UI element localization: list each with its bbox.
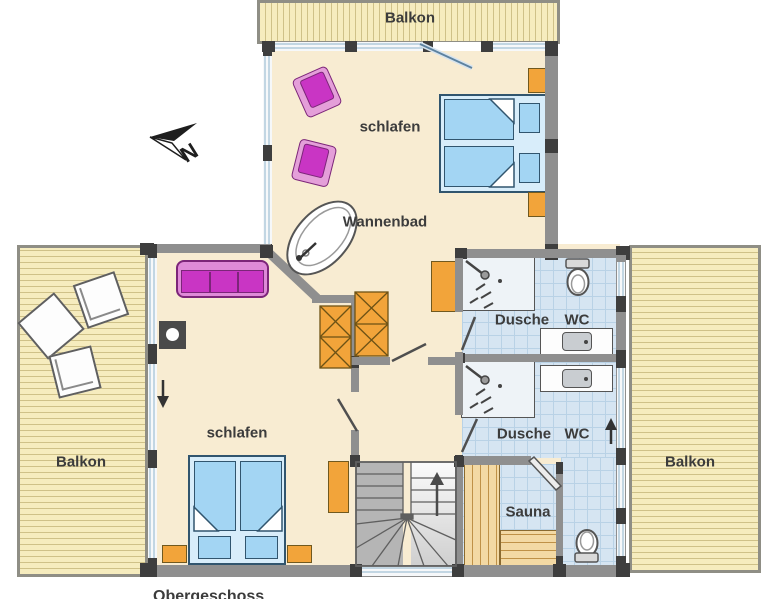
balcony-right-label: Balkon bbox=[665, 454, 715, 471]
bath1-wc-label: WC bbox=[565, 312, 590, 329]
window-segment bbox=[148, 468, 157, 558]
wall-node bbox=[553, 564, 566, 577]
lounger-fold bbox=[79, 278, 120, 321]
wall-node bbox=[148, 344, 157, 364]
wall-node bbox=[556, 462, 563, 474]
pillow bbox=[519, 153, 540, 183]
sauna-bench-bottom bbox=[500, 530, 558, 567]
north-arrow-icon: N bbox=[150, 123, 202, 167]
wall-node bbox=[350, 455, 360, 467]
bathtub-room-label: Wannenbad bbox=[343, 214, 427, 231]
mattress bbox=[444, 99, 514, 140]
sauna-bench-left bbox=[464, 464, 500, 567]
wall-node bbox=[263, 145, 272, 161]
nightstand bbox=[528, 68, 546, 93]
stairs-right-flight bbox=[411, 462, 456, 566]
window-segment bbox=[357, 42, 423, 51]
window-segment bbox=[362, 566, 452, 576]
shower-tray bbox=[461, 256, 535, 311]
bath1-dusche-label: Dusche bbox=[495, 312, 549, 329]
cabinet bbox=[431, 261, 458, 312]
sofa-divider bbox=[237, 272, 239, 292]
wall-segment bbox=[312, 295, 358, 303]
pillow bbox=[245, 536, 278, 559]
wall-segment bbox=[455, 258, 463, 312]
wall-node bbox=[616, 563, 630, 577]
wall-segment bbox=[455, 354, 618, 362]
wall-segment bbox=[556, 462, 563, 567]
wall-segment bbox=[455, 463, 463, 577]
window-segment bbox=[493, 42, 545, 51]
sofa-seat bbox=[181, 270, 264, 293]
bath2-wc-label: WC bbox=[565, 426, 590, 443]
wall-segment bbox=[455, 456, 531, 465]
wall-node bbox=[423, 41, 433, 52]
window-segment bbox=[275, 42, 345, 51]
wall-node bbox=[616, 508, 626, 524]
mattress bbox=[194, 461, 236, 531]
wall-node bbox=[545, 139, 558, 153]
mattress bbox=[240, 461, 282, 531]
window-segment bbox=[617, 262, 625, 298]
wall-node bbox=[616, 296, 626, 312]
shower-tray bbox=[461, 361, 535, 418]
wall-node bbox=[481, 41, 493, 52]
window-segment bbox=[617, 465, 625, 508]
nightstand bbox=[287, 545, 312, 563]
stairs-left-flight bbox=[356, 462, 403, 566]
mattress bbox=[444, 146, 514, 187]
wall-node bbox=[148, 450, 157, 468]
window-segment bbox=[617, 368, 625, 448]
wall-segment bbox=[455, 249, 630, 258]
wall-node bbox=[616, 448, 626, 465]
wall-node bbox=[350, 564, 362, 577]
wall-node bbox=[148, 244, 157, 258]
wall-node bbox=[454, 456, 464, 467]
floor-name-label: Obergeschoss bbox=[153, 588, 264, 599]
pillow bbox=[198, 536, 231, 559]
wall-segment bbox=[140, 244, 271, 253]
sauna-label: Sauna bbox=[505, 504, 550, 521]
balcony-right bbox=[629, 245, 761, 573]
nightstand bbox=[528, 192, 546, 217]
pillow bbox=[519, 103, 540, 133]
stove-ring bbox=[166, 328, 179, 341]
stove-icon bbox=[159, 321, 186, 349]
armchair-seat bbox=[297, 143, 329, 178]
wall-node bbox=[616, 350, 626, 368]
window-segment bbox=[263, 55, 272, 145]
wall-node bbox=[148, 558, 157, 577]
sink-icon bbox=[562, 369, 592, 388]
wall-node bbox=[345, 41, 357, 52]
cabinet bbox=[328, 461, 349, 513]
bedroom-top-label: schlafen bbox=[360, 119, 421, 136]
window-segment bbox=[148, 258, 157, 344]
wall-segment bbox=[351, 303, 359, 392]
wall-node bbox=[263, 42, 272, 56]
compass-n-label: N bbox=[176, 138, 203, 168]
stairs-well bbox=[403, 462, 411, 518]
balcony-top-label: Balkon bbox=[385, 10, 435, 27]
wall-node bbox=[452, 564, 464, 577]
bath2-corridor-floor bbox=[561, 457, 618, 567]
sofa bbox=[176, 260, 269, 298]
wall-node bbox=[545, 42, 558, 56]
nightstand bbox=[162, 545, 187, 563]
sofa-divider bbox=[209, 272, 211, 292]
lounger-fold bbox=[54, 352, 93, 391]
wall-segment bbox=[351, 357, 390, 365]
bedroom-bottom-label: schlafen bbox=[207, 425, 268, 442]
window-segment bbox=[617, 524, 625, 556]
armchair-seat bbox=[299, 71, 335, 109]
window-segment bbox=[148, 364, 157, 450]
sink-icon bbox=[562, 332, 592, 351]
window-segment bbox=[263, 160, 272, 244]
wall-segment bbox=[455, 352, 463, 415]
balcony-left-label: Balkon bbox=[56, 454, 106, 471]
bath2-dusche-label: Dusche bbox=[497, 426, 551, 443]
floor-plan: N bbox=[0, 0, 778, 599]
